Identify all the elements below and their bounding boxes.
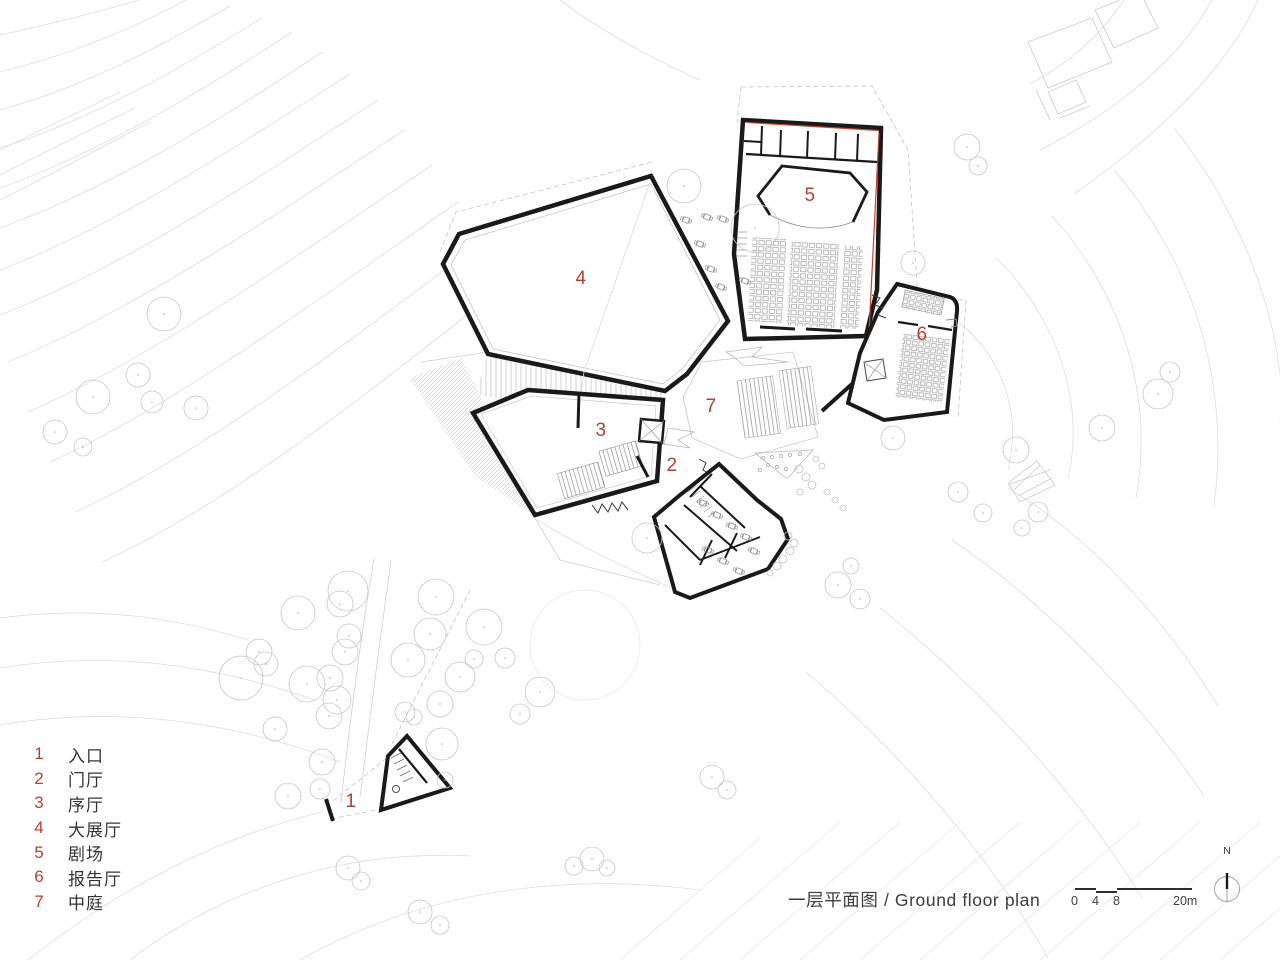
landscape-shape	[664, 428, 694, 448]
scale-tick: 20m	[1173, 894, 1197, 908]
terrace-triangle	[755, 450, 813, 479]
legend: 1入口 2门厅 3序厅 4大展厅 5剧场 6报告厅 7中庭	[30, 742, 122, 914]
plan-drawing	[0, 0, 1280, 960]
building-5-theater	[734, 120, 881, 339]
legend-item: 1入口	[30, 742, 122, 767]
ramp-east	[1008, 461, 1055, 502]
existing-buildings	[1028, 0, 1158, 120]
scale-tick: 8	[1113, 894, 1120, 908]
floor-plan-canvas: 1 2 3 4 5 6 7 1入口 2门厅 3序厅 4大展厅 5剧场 6报告厅 …	[0, 0, 1280, 960]
drawing-title: 一层平面图 / Ground floor plan	[788, 887, 1040, 912]
marker-foyer: 2	[666, 455, 677, 477]
north-label: N	[1223, 845, 1231, 857]
marker-exhibition-hall: 4	[575, 268, 586, 290]
service-wing	[654, 464, 788, 598]
legend-item: 3序厅	[30, 791, 122, 816]
legend-item: 4大展厅	[30, 816, 122, 841]
scale-bar: 0 4 8 20m	[1068, 880, 1200, 912]
scale-tick: 0	[1071, 894, 1078, 908]
landscape-shape	[726, 347, 788, 366]
north-arrow: N	[1204, 845, 1250, 907]
legend-item: 6报告厅	[30, 865, 122, 890]
marker-atrium: 7	[705, 396, 716, 418]
legend-item: 5剧场	[30, 840, 122, 865]
legend-item: 2门厅	[30, 767, 122, 792]
marker-lecture-hall: 6	[916, 324, 927, 346]
large-canopy-circle	[530, 590, 640, 700]
marker-entrance: 1	[345, 791, 356, 813]
scale-tick: 4	[1092, 894, 1099, 908]
marker-prologue-hall: 3	[595, 420, 606, 442]
marker-theater: 5	[804, 185, 815, 207]
legend-item: 7中庭	[30, 890, 122, 915]
